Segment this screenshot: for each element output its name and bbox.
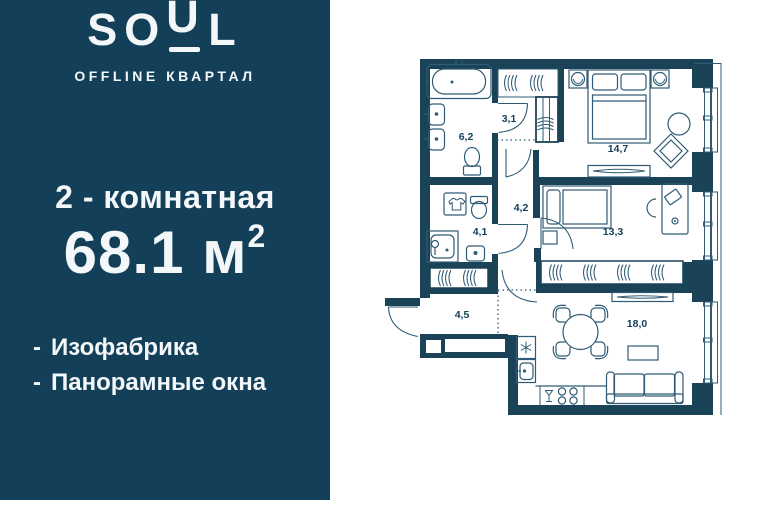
sofa-icon xyxy=(607,372,684,404)
kitchen-sink-icon xyxy=(517,360,536,383)
windows xyxy=(694,63,721,415)
ceiling-vent-icon xyxy=(569,70,587,88)
room-label-bathroom-2: 4,1 xyxy=(473,226,488,238)
window-icon xyxy=(704,302,718,383)
desk-chair-icon xyxy=(647,199,656,217)
stove-icon xyxy=(558,388,577,404)
armchair-icon xyxy=(654,134,688,168)
floor-plan-area: 6,2 3,1 14,7 4,2 4,1 13,3 4,5 18,0 xyxy=(330,0,770,500)
tv-stand-icon xyxy=(612,293,673,302)
sink-icon xyxy=(467,246,485,261)
logo-letter-u-wrap: U xyxy=(166,0,208,52)
dresser-icon xyxy=(588,166,650,178)
brand-panel: SOUL OFFLINE КВАРТАЛ 2 - комнатная 68.1 … xyxy=(0,0,330,500)
unit-type-title: 2 - комнатная xyxy=(0,179,330,216)
shower-icon xyxy=(427,231,458,262)
single-bed-icon xyxy=(543,186,611,244)
glass-icon xyxy=(546,391,553,402)
floor-plan: 6,2 3,1 14,7 4,2 4,1 13,3 4,5 18,0 xyxy=(330,0,770,500)
toilet-icon xyxy=(464,148,481,176)
feature-list: - Изофабрика - Панорамные окна xyxy=(0,334,330,397)
toilet-icon xyxy=(471,197,488,219)
dining-set-icon xyxy=(553,305,607,358)
entry-door-icon xyxy=(389,307,419,337)
desk-icon xyxy=(662,184,688,234)
logo-letter-l: L xyxy=(208,7,243,52)
feature-label: Панорамные окна xyxy=(51,369,266,397)
ceiling-vent-icon xyxy=(651,70,669,88)
room-label-bedroom: 14,7 xyxy=(608,143,629,155)
room-label-bathroom: 6,2 xyxy=(459,131,474,143)
logo-underline xyxy=(169,47,200,52)
washing-machine-icon xyxy=(444,193,466,215)
window-icon xyxy=(704,192,718,260)
area-superscript: 2 xyxy=(248,218,267,254)
logo-letters-so: SO xyxy=(87,7,166,52)
feature-item: - Изофабрика xyxy=(33,334,330,362)
unit-area: 68.1 м2 xyxy=(0,220,330,284)
feature-bullet: - xyxy=(33,334,41,362)
door-icon xyxy=(502,270,537,302)
coffee-table-icon xyxy=(628,346,658,360)
door-icon xyxy=(506,149,531,177)
room-label-entry-hall: 4,5 xyxy=(455,309,470,321)
feature-label: Изофабрика xyxy=(51,334,198,362)
wardrobe-bedroom2-icon xyxy=(541,261,683,284)
feature-bullet: - xyxy=(33,369,41,397)
window-icon xyxy=(704,88,718,152)
room-label-kitchen-living: 18,0 xyxy=(627,318,648,330)
feature-item: - Панорамные окна xyxy=(33,369,330,397)
door-icon xyxy=(498,225,528,254)
area-unit: м xyxy=(202,219,247,286)
room-label-hallway: 4,2 xyxy=(514,202,529,214)
wardrobe-hall-icon xyxy=(430,268,488,288)
logo-wordmark: SOUL xyxy=(0,0,330,52)
logo-subtitle: OFFLINE КВАРТАЛ xyxy=(0,68,330,84)
double-bed-icon xyxy=(588,70,650,143)
room-label-closet-hall: 3,1 xyxy=(502,113,517,125)
fridge-icon xyxy=(517,337,536,359)
pouf-icon xyxy=(668,113,690,135)
soul-logo: SOUL OFFLINE КВАРТАЛ xyxy=(0,0,330,84)
logo-letter-u: U xyxy=(166,0,206,39)
area-value: 68.1 xyxy=(64,219,185,286)
room-label-bedroom-2: 13,3 xyxy=(603,226,624,238)
